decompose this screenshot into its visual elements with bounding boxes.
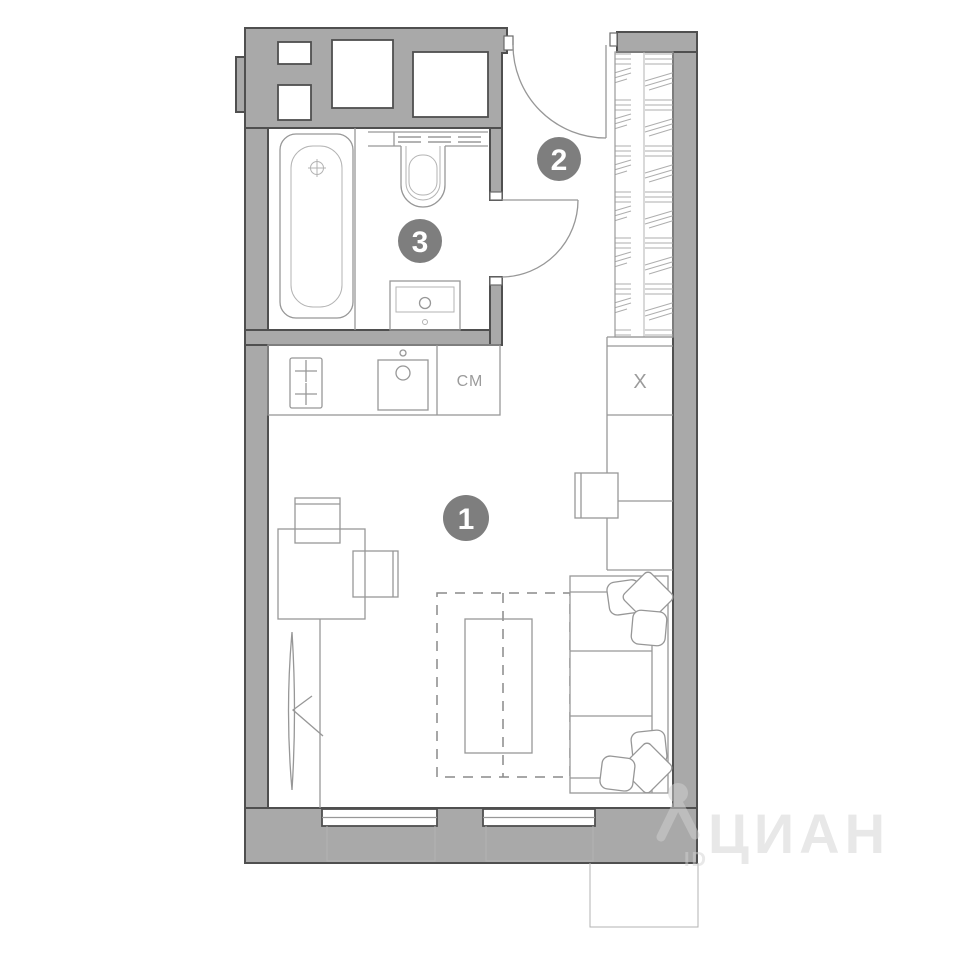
bathroom-fixtures <box>280 128 488 330</box>
floor-plan-canvas: СМ Х <box>0 0 960 960</box>
tv-bracket <box>293 696 323 736</box>
shaft-opening <box>413 52 488 117</box>
room-badge-hall: 2 <box>537 137 581 181</box>
door-jamb <box>504 36 513 50</box>
shaft-opening <box>332 40 393 108</box>
room-badge-living: 1 <box>443 495 489 541</box>
wall-bath-hall-upper <box>490 128 502 200</box>
watermark-id: ID <box>684 849 708 871</box>
wall-bath-hall-lower <box>490 277 502 345</box>
bathtub-drain-icon <box>308 159 326 177</box>
toilet-installation <box>368 132 488 146</box>
wardrobe <box>615 52 673 337</box>
watermark-brand: ЦИАН <box>708 802 890 865</box>
fridge-label: Х <box>633 371 646 393</box>
sofa <box>570 570 675 795</box>
toilet <box>401 146 445 207</box>
tv-zone <box>289 619 324 808</box>
entrance-door <box>504 33 617 138</box>
stove <box>290 358 322 408</box>
floor-plan: СМ Х <box>0 0 960 960</box>
dining-set <box>278 498 398 619</box>
wall-left-lower <box>245 345 268 808</box>
entrance-door-swing-arc <box>513 45 606 138</box>
wall-top-right <box>617 32 697 52</box>
pillow <box>631 610 668 647</box>
kitchen-sink <box>378 350 428 410</box>
coffee-table <box>465 619 532 753</box>
shaft-opening <box>278 42 311 64</box>
room-number: 3 <box>412 226 429 259</box>
bathroom-door <box>490 192 578 285</box>
wall-bottom <box>245 808 697 863</box>
adjacent-unit-outline <box>590 863 698 927</box>
side-stool <box>575 473 618 518</box>
room-number: 1 <box>458 503 475 536</box>
bathtub <box>280 134 353 318</box>
wall-right <box>673 52 697 863</box>
pillow <box>599 755 636 792</box>
door-jamb <box>490 192 502 200</box>
kitchen-counter: СМ <box>268 345 500 415</box>
room-number: 2 <box>551 144 568 177</box>
shaft-opening <box>278 85 311 120</box>
chair <box>295 498 340 543</box>
room-badge-bathroom: 3 <box>398 219 442 263</box>
wall-left-upper <box>245 128 268 330</box>
bathroom-door-swing-arc <box>502 200 578 277</box>
bathroom-sink <box>390 281 460 330</box>
door-jamb <box>610 33 617 46</box>
washing-machine-label: СМ <box>457 373 484 390</box>
door-jamb <box>490 277 502 285</box>
wall-bath-kitchen-divider <box>245 330 502 345</box>
storage-column: Х <box>607 337 673 570</box>
bed-projection <box>437 593 570 777</box>
chair <box>353 551 398 597</box>
